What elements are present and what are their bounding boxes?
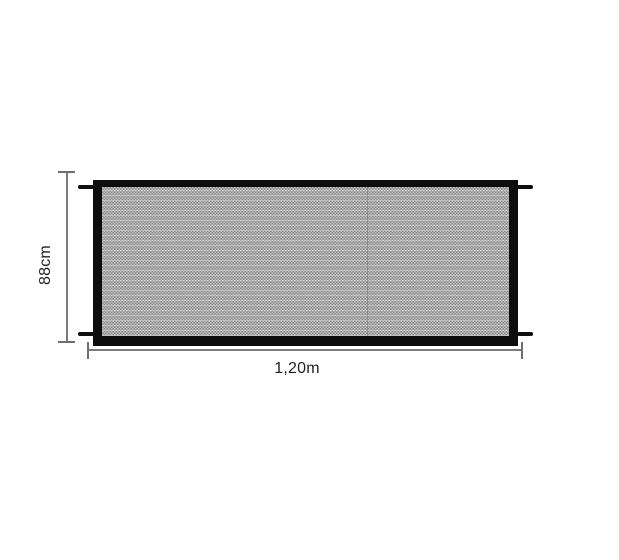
width-dimension-line [88,349,523,351]
height-dimension-line [66,172,68,343]
mounting-peg-bottom-right-icon [517,332,533,336]
width-dimension-label: 1,20m [247,359,347,379]
gate-frame [93,180,518,346]
width-dimension-left-tick [87,342,89,359]
height-dimension-bottom-tick [58,341,75,343]
product-diagram-canvas: 88cm 1,20m [0,0,619,560]
width-dimension-right-tick [521,342,523,359]
mounting-peg-top-left-icon [78,185,94,189]
mesh-seam [367,187,368,336]
mounting-peg-bottom-left-icon [78,332,94,336]
height-dimension-top-tick [58,171,75,173]
mounting-peg-top-right-icon [517,185,533,189]
height-dimension-label: 88cm [36,225,56,305]
